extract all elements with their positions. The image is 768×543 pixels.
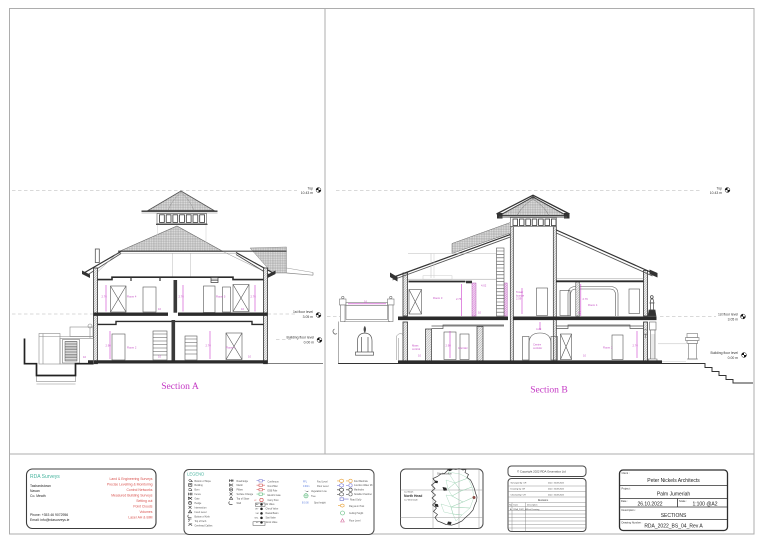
svg-text:RDA Surveys: RDA Surveys	[30, 474, 60, 480]
svg-text:Top of Slope: Top of Slope	[237, 499, 250, 501]
svg-text:Description :: Description :	[622, 508, 637, 512]
svg-text:2.74: 2.74	[206, 344, 212, 348]
svg-text:2.90: 2.90	[446, 344, 452, 348]
svg-text:1st floor level: 1st floor level	[293, 310, 313, 314]
svg-text:Top: Top	[717, 186, 723, 190]
svg-text:Intersection: Intersection	[195, 507, 208, 510]
svg-text:Room 1: Room 1	[603, 346, 613, 350]
svg-text:Volumes: Volumes	[139, 510, 152, 514]
svg-text:Tashardstown: Tashardstown	[30, 484, 51, 488]
svg-text:corridor: corridor	[533, 346, 542, 350]
svg-text:Scale :: Scale :	[679, 499, 687, 503]
svg-text:2.76: 2.76	[583, 297, 589, 301]
svg-text:Setting out: Setting out	[136, 499, 152, 503]
svg-text:Control Networks: Control Networks	[126, 488, 152, 492]
svg-text:Site Location: Site Location	[437, 472, 453, 476]
svg-text:10: 10	[158, 355, 161, 359]
svg-text:Room 5: Room 5	[216, 295, 226, 299]
svg-text:Section A: Section A	[161, 381, 199, 392]
svg-text:Client :: Client :	[622, 471, 630, 475]
svg-text:Surface Change: Surface Change	[237, 493, 254, 496]
svg-text:North Head: North Head	[404, 494, 422, 498]
svg-text:Description: Description	[527, 504, 538, 507]
svg-text:10: 10	[478, 311, 481, 315]
svg-text:Invert Level: Invert Level	[195, 511, 207, 514]
svg-text:Date: 16.08.2022: Date: 16.08.2022	[548, 482, 565, 485]
svg-text:10.43 m: 10.43 m	[301, 191, 313, 195]
svg-text:RDA_2022_BS_04_Rev A: RDA_2022_BS_04_Rev A	[644, 524, 703, 530]
svg-text:2.59: 2.59	[516, 297, 522, 301]
svg-text:Top: Top	[308, 186, 314, 190]
svg-text:FFL: FFL	[303, 482, 308, 484]
svg-text:Wall: Wall	[237, 503, 242, 505]
svg-text:Corridor: Corridor	[458, 346, 468, 350]
svg-text:LEGEND: LEGEND	[187, 472, 204, 477]
svg-text:Burn: Burn	[195, 489, 201, 492]
svg-text:10: 10	[583, 354, 586, 358]
svg-text:Revisions: Revisions	[538, 499, 549, 502]
svg-text:Rawat Basin: Rawat Basin	[266, 512, 280, 515]
svg-text:10: 10	[248, 355, 251, 359]
svg-text:Project :: Project :	[622, 487, 632, 491]
svg-text:control: control	[412, 347, 420, 351]
svg-text:2.76: 2.76	[102, 295, 108, 299]
svg-text:Building floor level: Building floor level	[286, 336, 314, 340]
svg-text:Bottom of Kerb: Bottom of Kerb	[195, 515, 211, 518]
svg-text:Room 4: Room 4	[588, 303, 598, 307]
svg-text:Room 4: Room 4	[127, 295, 137, 299]
svg-text:Hedge: Hedge	[195, 503, 202, 505]
svg-text:ESB Pole: ESB Pole	[268, 490, 279, 492]
svg-text:1:100 @A2: 1:100 @A2	[692, 502, 717, 508]
svg-text:Notable Chamber: Notable Chamber	[354, 493, 372, 496]
svg-text:0.00m: 0.00m	[303, 486, 309, 488]
svg-text:10: 10	[418, 354, 421, 358]
svg-text:Gate: Gate	[195, 498, 201, 501]
svg-text:3.05 m: 3.05 m	[303, 315, 314, 319]
svg-text:Manholes: Manholes	[354, 490, 365, 492]
svg-text:2.74: 2.74	[633, 344, 639, 348]
svg-text:Room 3: Room 3	[433, 296, 443, 300]
svg-text:Co. Meath: Co. Meath	[30, 494, 46, 498]
svg-text:2.76: 2.76	[251, 295, 257, 299]
svg-text:Drawing by: CH: Drawing by: CH	[511, 488, 526, 491]
svg-text:B 0.00: B 0.00	[302, 503, 309, 505]
svg-text:Stat Valve: Stat Valve	[266, 517, 277, 520]
svg-text:Room 1: Room 1	[226, 346, 236, 350]
svg-text:Email: info@rdasurveys.ie: Email: info@rdasurveys.ie	[30, 518, 70, 522]
svg-text:Foul Manhole: Foul Manhole	[354, 481, 369, 483]
svg-text:4.02: 4.02	[481, 284, 487, 288]
svg-text:Navan: Navan	[30, 489, 40, 493]
svg-text:Floor Level: Floor Level	[317, 485, 329, 488]
svg-text:Vegetation Line: Vegetation Line	[311, 490, 328, 493]
svg-text:Foul Level: Foul Level	[317, 482, 328, 484]
svg-text:© Copyright 2022 RDA Geomati: © Copyright 2022 RDA Geomatics Ltd	[517, 470, 566, 474]
svg-text:Precise Levelling & Monitoring: Precise Levelling & Monitoring	[107, 483, 153, 487]
svg-text:16: 16	[364, 300, 367, 304]
svg-text:Top of Kerb: Top of Kerb	[195, 520, 207, 523]
svg-text:Date: 16.08.2022: Date: 16.08.2022	[548, 494, 565, 497]
svg-text:0.00 m: 0.00 m	[304, 340, 315, 344]
svg-text:Marsh: Marsh	[237, 484, 244, 487]
svg-text:Drawing Number :: Drawing Number :	[622, 521, 643, 525]
svg-text:Bottom of Slope: Bottom of Slope	[195, 480, 212, 483]
svg-text:Fence: Fence	[195, 494, 202, 496]
svg-text:4.29: 4.29	[536, 327, 542, 331]
svg-text:First Drawing: First Drawing	[527, 508, 540, 511]
svg-text:Land & Engineering Surveys: Land & Engineering Surveys	[110, 477, 153, 481]
svg-text:Checked by: CH: Checked by: CH	[511, 495, 527, 497]
svg-text:Building floor level: Building floor level	[710, 351, 738, 355]
svg-text:10: 10	[241, 307, 244, 311]
svg-text:Carry Post: Carry Post	[268, 499, 279, 502]
svg-text:3.05 m: 3.05 m	[728, 317, 739, 321]
svg-text:10: 10	[83, 355, 86, 359]
svg-text:Phone: +353 46 9072956: Phone: +353 46 9072956	[30, 513, 68, 517]
svg-text:10.43 m: 10.43 m	[710, 191, 722, 195]
svg-text:Check Valve: Check Valve	[266, 509, 279, 511]
svg-text:Co. Westmeath: Co. Westmeath	[404, 499, 418, 502]
svg-text:Surveyed by: CH: Surveyed by: CH	[511, 482, 527, 485]
svg-text:Room 2: Room 2	[127, 346, 137, 350]
svg-text:Electric Gate: Electric Gate	[268, 494, 282, 497]
svg-text:Ceiling Height: Ceiling Height	[349, 512, 364, 515]
svg-text:10: 10	[578, 311, 581, 315]
svg-text:Floor Level: Floor Level	[349, 519, 361, 522]
svg-text:Pillars: Pillars	[237, 489, 244, 492]
svg-text:Stock Valve: Stock Valve	[266, 521, 279, 524]
svg-text:2.90: 2.90	[106, 344, 112, 348]
svg-text:2.76: 2.76	[179, 295, 185, 299]
svg-text:Tree: Tree	[311, 495, 316, 498]
svg-text:Road Edge: Road Edge	[237, 481, 249, 483]
svg-text:Air Valve: Air Valve	[266, 503, 276, 506]
svg-text:Measured Building Surveys: Measured Building Surveys	[111, 494, 153, 498]
svg-text:Flag as in Post: Flag as in Post	[349, 505, 365, 508]
svg-text:Non-Pillar: Non-Pillar	[268, 485, 278, 488]
svg-text:Coniferous: Coniferous	[268, 480, 280, 483]
svg-text:SECTIONS: SECTIONS	[661, 513, 687, 519]
svg-text:Point Clouds: Point Clouds	[133, 505, 153, 509]
svg-text:2.76: 2.76	[456, 297, 462, 301]
svg-text:Laser AH & BIM: Laser AH & BIM	[128, 516, 152, 520]
svg-text:10: 10	[158, 307, 161, 311]
svg-text:Overhead Cables: Overhead Cables	[195, 524, 214, 527]
svg-text:Junction Water Mt: Junction Water Mt	[354, 484, 373, 487]
svg-text:RDA_2022_04: RDA_2022_04	[514, 508, 528, 511]
svg-text:Spot height: Spot height	[314, 502, 326, 505]
svg-text:0.00 m: 0.00 m	[728, 356, 739, 360]
svg-text:1st floor level: 1st floor level	[718, 313, 738, 317]
svg-text:Date :: Date :	[621, 499, 628, 503]
svg-text:VM: VM	[256, 513, 259, 515]
svg-text:Section B: Section B	[530, 385, 568, 396]
svg-text:Building: Building	[195, 485, 204, 487]
svg-text:Date: 16.08.2022: Date: 16.08.2022	[548, 488, 565, 491]
svg-text:26.10.2022: 26.10.2022	[637, 502, 662, 508]
svg-text:Palm Jumeriah: Palm Jumeriah	[657, 492, 691, 498]
svg-text:Peter Nickels Architects: Peter Nickels Architects	[647, 478, 700, 484]
svg-text:Road Gully: Road Gully	[350, 499, 362, 501]
